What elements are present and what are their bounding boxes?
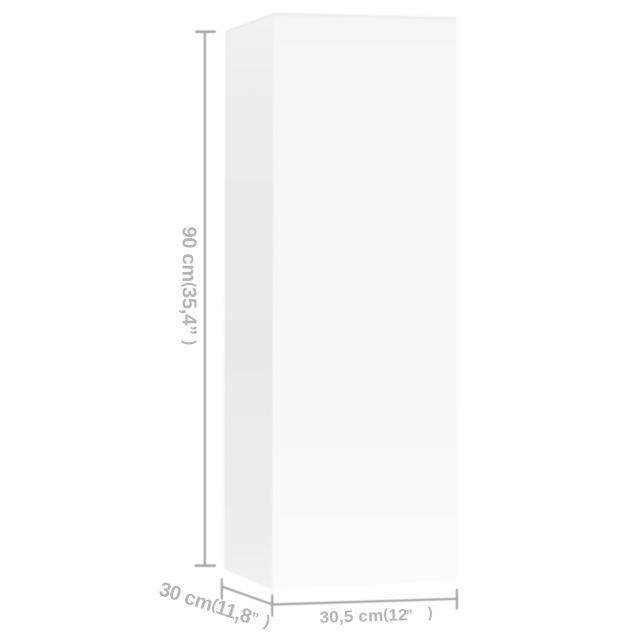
svg-text:90 cm(35,4” ): 90 cm(35,4” )	[177, 227, 199, 346]
svg-text:30,5 cm(12” ): 30,5 cm(12” )	[319, 604, 433, 627]
svg-text:30 cm(11,8” ): 30 cm(11,8” )	[156, 578, 272, 634]
